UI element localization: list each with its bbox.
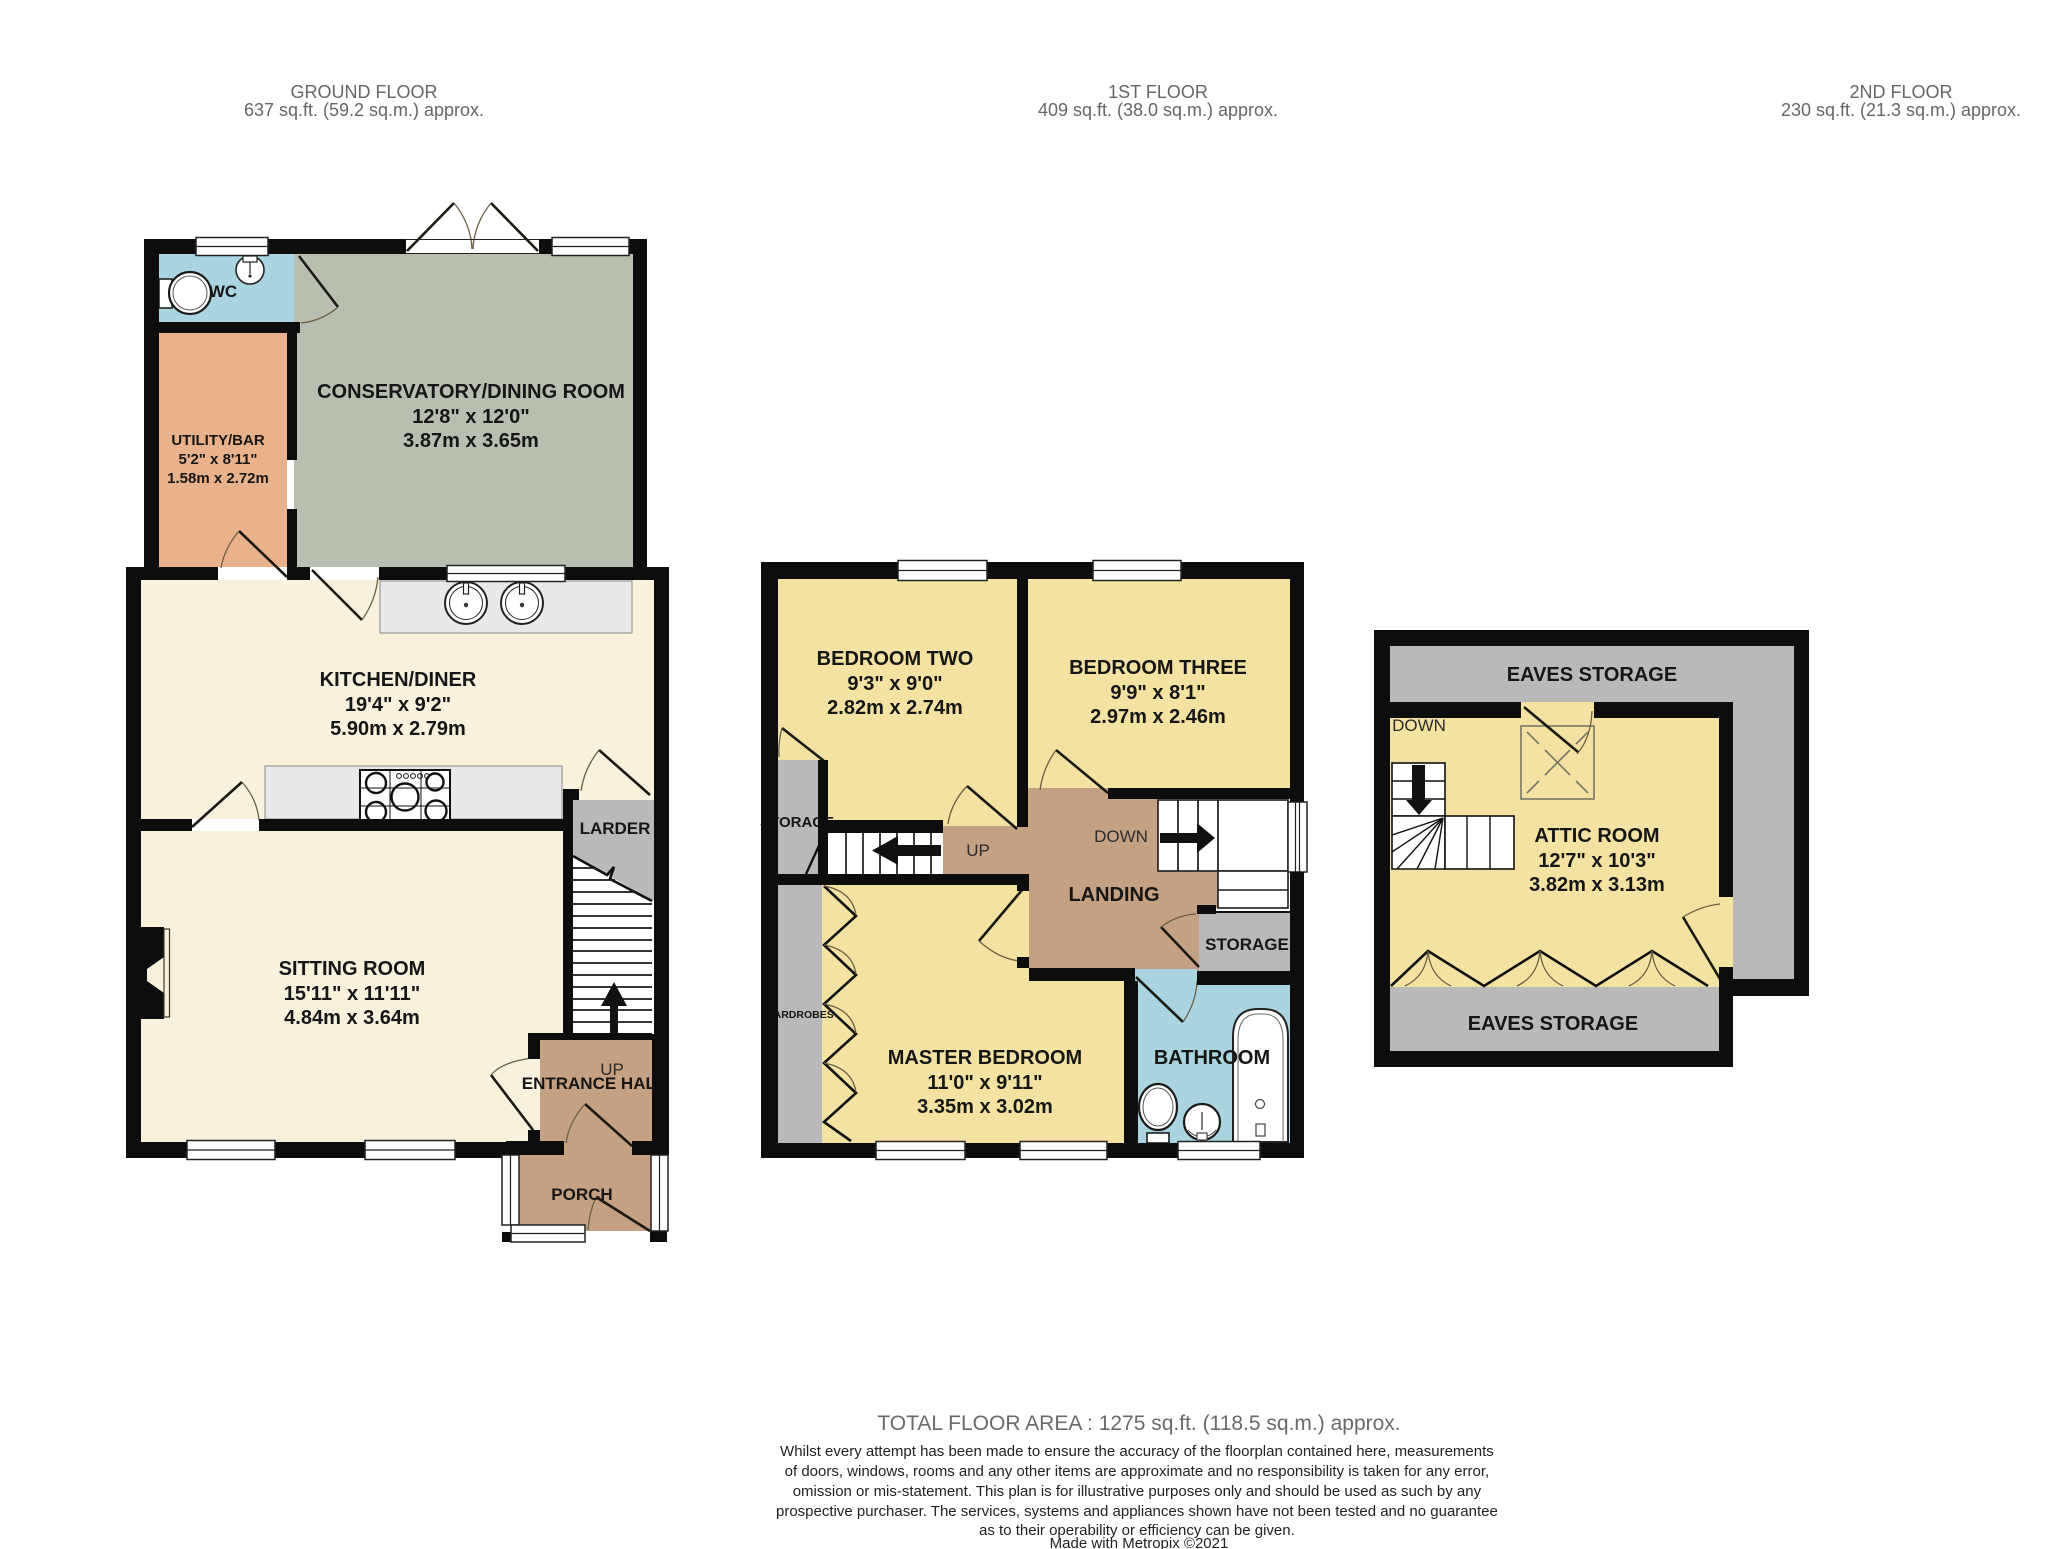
svg-text:409 sq.ft. (38.0 sq.m.) approx: 409 sq.ft. (38.0 sq.m.) approx. bbox=[1038, 100, 1278, 120]
svg-text:3.87m x 3.65m: 3.87m x 3.65m bbox=[403, 430, 539, 452]
svg-text:DOWN: DOWN bbox=[1094, 827, 1148, 846]
svg-text:MASTER BEDROOM: MASTER BEDROOM bbox=[888, 1047, 1082, 1069]
svg-text:3.82m x 3.13m: 3.82m x 3.13m bbox=[1529, 874, 1665, 896]
svg-text:9'9" x 8'1": 9'9" x 8'1" bbox=[1110, 682, 1205, 704]
svg-text:UTILITY/BAR: UTILITY/BAR bbox=[171, 432, 264, 449]
svg-text:2.97m x 2.46m: 2.97m x 2.46m bbox=[1090, 706, 1226, 728]
svg-text:230 sq.ft. (21.3 sq.m.) approx: 230 sq.ft. (21.3 sq.m.) approx. bbox=[1781, 100, 2021, 120]
svg-text:5.90m x 2.79m: 5.90m x 2.79m bbox=[330, 718, 466, 740]
svg-text:12'8" x 12'0": 12'8" x 12'0" bbox=[412, 406, 529, 428]
svg-text:LANDING: LANDING bbox=[1068, 884, 1159, 906]
svg-text:LARDER: LARDER bbox=[580, 819, 651, 838]
svg-text:BEDROOM THREE: BEDROOM THREE bbox=[1069, 657, 1247, 679]
svg-text:3.35m x 3.02m: 3.35m x 3.02m bbox=[917, 1096, 1053, 1118]
svg-text:CONSERVATORY/DINING ROOM: CONSERVATORY/DINING ROOM bbox=[317, 381, 625, 403]
svg-text:ENTRANCE HALL: ENTRANCE HALL bbox=[522, 1074, 667, 1093]
svg-text:2.82m x 2.74m: 2.82m x 2.74m bbox=[827, 697, 963, 719]
svg-text:EAVES STORAGE: EAVES STORAGE bbox=[1468, 1013, 1638, 1035]
svg-text:2ND FLOOR: 2ND FLOOR bbox=[1849, 82, 1952, 102]
svg-text:9'3" x 9'0": 9'3" x 9'0" bbox=[847, 673, 942, 695]
svg-text:1.58m x 2.72m: 1.58m x 2.72m bbox=[167, 470, 269, 487]
svg-text:11'0" x 9'11": 11'0" x 9'11" bbox=[927, 1072, 1042, 1094]
svg-text:1ST FLOOR: 1ST FLOOR bbox=[1108, 82, 1208, 102]
svg-text:KITCHEN/DINER: KITCHEN/DINER bbox=[320, 669, 477, 691]
svg-text:GROUND FLOOR: GROUND FLOOR bbox=[290, 82, 437, 102]
svg-text:DOWN: DOWN bbox=[1392, 716, 1446, 735]
svg-text:SITTING ROOM: SITTING ROOM bbox=[279, 958, 426, 980]
svg-text:15'11" x 11'11": 15'11" x 11'11" bbox=[284, 983, 420, 1005]
svg-text:ATTIC ROOM: ATTIC ROOM bbox=[1534, 825, 1659, 847]
svg-text:PORCH: PORCH bbox=[551, 1185, 612, 1204]
svg-text:BEDROOM TWO: BEDROOM TWO bbox=[817, 648, 974, 670]
svg-text:19'4" x 9'2": 19'4" x 9'2" bbox=[345, 694, 451, 716]
svg-text:12'7" x 10'3": 12'7" x 10'3" bbox=[1538, 850, 1655, 872]
svg-text:5'2" x 8'11": 5'2" x 8'11" bbox=[179, 451, 258, 468]
svg-text:WC: WC bbox=[209, 282, 237, 301]
svg-text:637 sq.ft. (59.2 sq.m.) approx: 637 sq.ft. (59.2 sq.m.) approx. bbox=[244, 100, 484, 120]
svg-text:UP: UP bbox=[966, 841, 990, 860]
svg-text:4.84m x 3.64m: 4.84m x 3.64m bbox=[284, 1007, 420, 1029]
svg-text:STORAGE: STORAGE bbox=[1205, 935, 1289, 954]
svg-text:TOTAL FLOOR AREA : 1275 sq.ft.: TOTAL FLOOR AREA : 1275 sq.ft. (118.5 sq… bbox=[877, 1412, 1400, 1435]
svg-text:BATHROOM: BATHROOM bbox=[1154, 1047, 1270, 1069]
svg-text:EAVES STORAGE: EAVES STORAGE bbox=[1507, 664, 1677, 686]
